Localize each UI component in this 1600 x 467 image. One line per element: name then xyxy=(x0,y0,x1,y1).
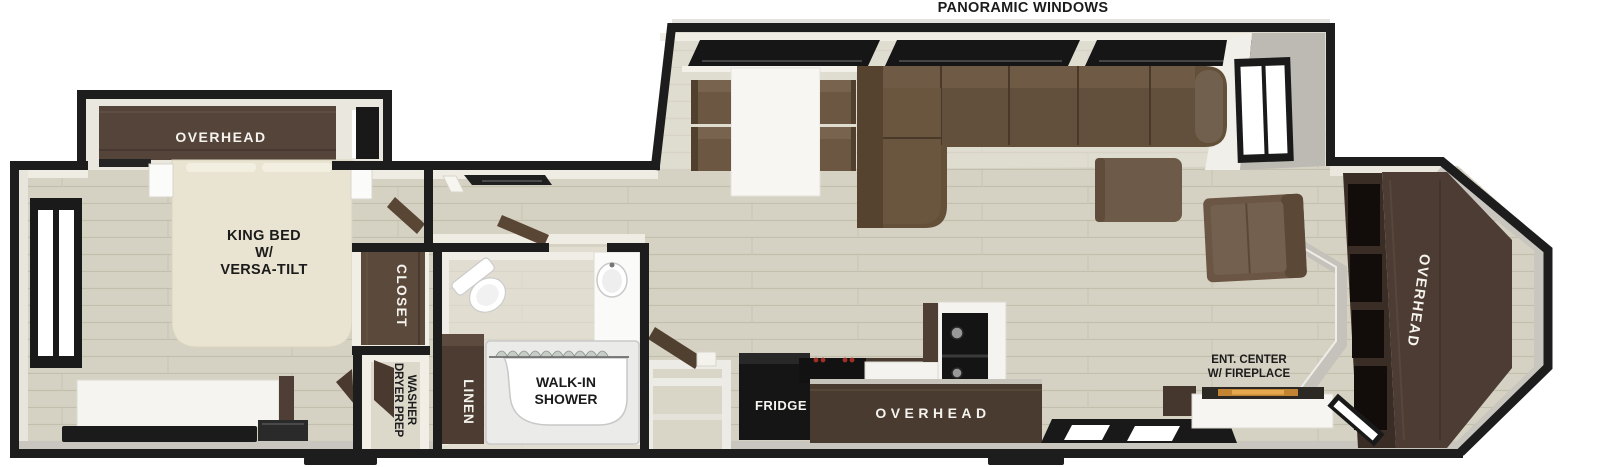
svg-text:WALK-IN: WALK-IN xyxy=(536,374,596,390)
svg-text:W/: W/ xyxy=(255,245,273,261)
svg-text:OVERHEAD: OVERHEAD xyxy=(875,405,990,421)
svg-text:KING BED: KING BED xyxy=(227,228,301,244)
svg-text:ENT. CENTER: ENT. CENTER xyxy=(1211,354,1287,366)
svg-text:CLOSET: CLOSET xyxy=(394,264,409,328)
svg-text:OVERHEAD: OVERHEAD xyxy=(175,129,266,145)
svg-text:W/ FIREPLACE: W/ FIREPLACE xyxy=(1208,368,1291,380)
svg-text:SHOWER: SHOWER xyxy=(535,391,598,407)
svg-text:LINEN: LINEN xyxy=(461,379,476,425)
svg-text:VERSA-TILT: VERSA-TILT xyxy=(220,262,307,278)
svg-text:FRIDGE: FRIDGE xyxy=(755,398,807,413)
svg-text:PANORAMIC WINDOWS: PANORAMIC WINDOWS xyxy=(938,0,1109,16)
